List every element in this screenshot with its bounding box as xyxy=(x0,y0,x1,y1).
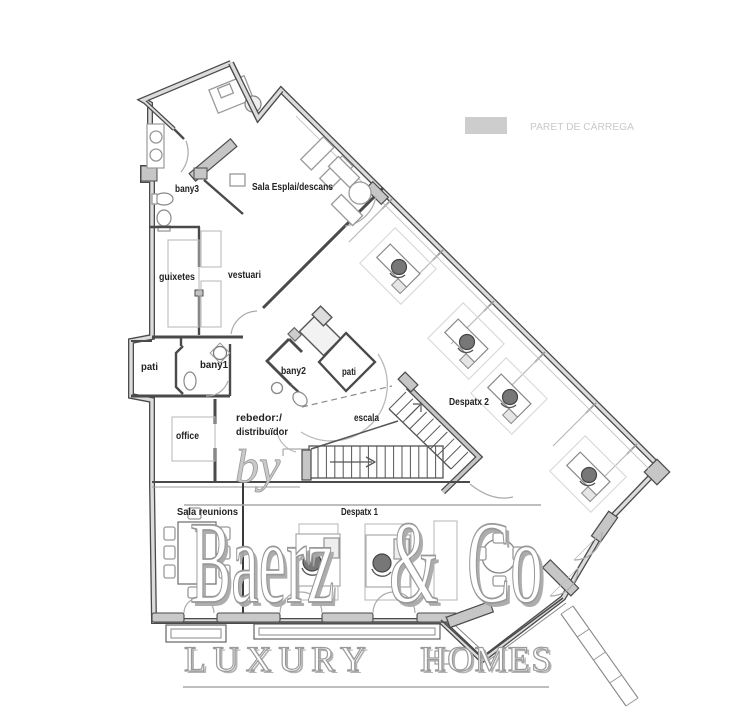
svg-text:distribuïdor: distribuïdor xyxy=(236,427,288,438)
svg-text:PARET DE CÀRREGA: PARET DE CÀRREGA xyxy=(530,120,634,133)
svg-text:Co: Co xyxy=(467,497,543,628)
svg-text:escala: escala xyxy=(354,413,379,424)
svg-text:LUXURY: LUXURY xyxy=(184,639,373,679)
svg-text:HOMES: HOMES xyxy=(420,639,553,679)
svg-text:pati: pati xyxy=(342,367,356,378)
svg-text:bany3: bany3 xyxy=(175,184,199,195)
svg-text:Baerz: Baerz xyxy=(190,498,334,628)
svg-text:Despatx 1: Despatx 1 xyxy=(341,507,378,518)
svg-text:pati: pati xyxy=(141,362,158,373)
svg-text:Despatx 2: Despatx 2 xyxy=(449,397,489,408)
svg-text:rebedor:/: rebedor:/ xyxy=(236,413,282,424)
svg-text:office: office xyxy=(176,431,199,442)
svg-text:vestuari: vestuari xyxy=(228,270,261,281)
svg-text:bany1: bany1 xyxy=(200,360,228,371)
svg-text:Sala Esplai/descans: Sala Esplai/descans xyxy=(252,182,333,193)
svg-text:by: by xyxy=(235,440,281,493)
svg-text:bany2: bany2 xyxy=(281,366,306,377)
svg-text:&: & xyxy=(389,497,439,628)
svg-text:guixetes: guixetes xyxy=(159,272,195,283)
